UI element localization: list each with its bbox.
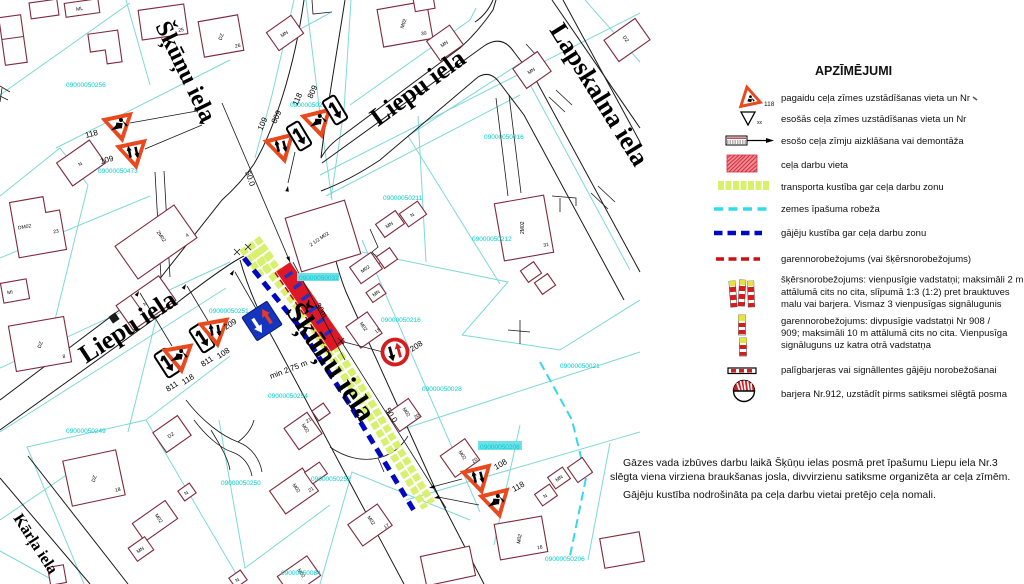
svg-text:MI: MI [7,289,14,296]
svg-text:118: 118 [764,101,775,108]
svg-text:09000050216: 09000050216 [381,317,421,324]
svg-text:2M02: 2M02 [520,221,526,234]
svg-text:signāluguns uz katra otrā vads: signāluguns uz katra otrā vadstatņa [781,340,932,351]
svg-text:xx: xx [757,120,763,126]
svg-text:09000050252: 09000050252 [311,476,351,483]
svg-text:transporta kustība gar ceļa da: transporta kustība gar ceļa darbu zonu [781,182,944,193]
svg-text:09000050032: 09000050032 [299,275,339,282]
svg-text:attālumā cits no cita, slīpumā: attālumā cits no cita, slīpumā 1:3 (1:2)… [781,287,1010,298]
svg-text:pagaidu ceļa zīmes uzstādīšana: pagaidu ceļa zīmes uzstādīšanas vieta un… [781,93,970,104]
svg-text:zemes īpašuma robeža: zemes īpašuma robeža [781,204,880,215]
svg-text:ceļa darbu vieta: ceļa darbu vieta [781,160,849,171]
svg-text:09000050028: 09000050028 [422,386,462,393]
svg-text:gājēju kustība gar ceļa darbu: gājēju kustība gar ceļa darbu zonu [781,228,926,239]
svg-text:esošās ceļa zīmes uzstādīšanas: esošās ceļa zīmes uzstādīšanas vieta un … [781,114,966,125]
svg-text:09000050249: 09000050249 [66,428,106,435]
svg-text:09000050256: 09000050256 [66,82,106,89]
svg-text:Gāzes vada izbūves darbu laikā: Gāzes vada izbūves darbu laikā Šķūņu iel… [623,456,998,469]
svg-text:09000050211: 09000050211 [383,195,423,202]
svg-text:09000050251: 09000050251 [209,308,249,315]
svg-text:09000050254: 09000050254 [268,393,308,400]
svg-text:09000050212: 09000050212 [472,236,512,243]
svg-text:ML: ML [76,6,84,13]
svg-text:APZĪMĒJUMI: APZĪMĒJUMI [815,64,892,78]
svg-text:09000050250: 09000050250 [221,480,261,487]
svg-text:garennorobežojums: divpusīgie: garennorobežojums: divpusīgie vadstatņi … [781,316,990,327]
svg-text:09000050206: 09000050206 [545,556,585,563]
svg-text:Gājēju kustība nodrošināta pa: Gājēju kustība nodrošināta pa ceļa darbu… [623,489,936,501]
svg-text:barjera Nr.912, uzstādīt pirms: barjera Nr.912, uzstādīt pirms satiksmei… [781,389,1008,400]
svg-text:garennorobežojums (vai šķērsno: garennorobežojums (vai šķērsnorobežojums… [781,254,971,265]
svg-text:malu vai barjera. Vismaz 3 vie: malu vai barjera. Vismaz 3 vienpusīgas s… [781,299,1002,310]
svg-text:09000050016: 09000050016 [484,134,524,141]
svg-text:09000050084: 09000050084 [281,570,321,577]
svg-text:palīgbarjeras vai signāllentes: palīgbarjeras vai signāllentes gājēju no… [781,365,996,376]
svg-text:909; maksimāli 10 m attālumā c: 909; maksimāli 10 m attālumā cits no cit… [781,328,1008,339]
svg-text:09000050208: 09000050208 [480,444,520,451]
svg-text:09000050473: 09000050473 [98,168,138,175]
svg-text:šķērsnorobežojums: vienpusīgie: šķērsnorobežojums: vienpusīgie vadstatņi… [781,275,1023,286]
svg-text:esošo ceļa zīmju aizklāšana va: esošo ceļa zīmju aizklāšana vai demontāž… [781,136,964,147]
svg-text:slēgta viena virziena braukšan: slēgta viena virziena braukšanas josla, … [610,471,1010,483]
svg-text:09000050021: 09000050021 [560,363,600,370]
